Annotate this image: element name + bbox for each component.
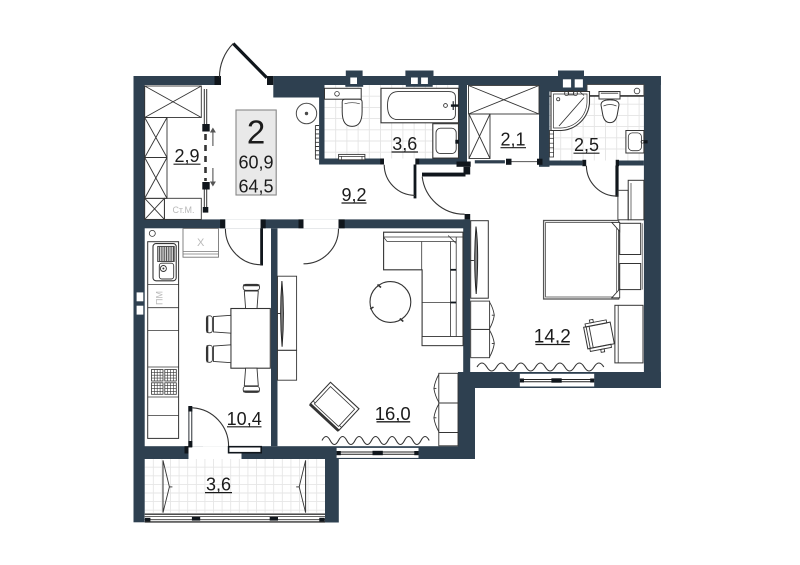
svg-text:16,0: 16,0: [375, 403, 411, 424]
svg-text:2: 2: [247, 114, 265, 151]
svg-text:2,5: 2,5: [574, 135, 599, 155]
svg-text:3,6: 3,6: [206, 475, 231, 495]
svg-text:ПМ: ПМ: [155, 291, 165, 305]
svg-text:64,5: 64,5: [238, 177, 273, 197]
svg-text:3,6: 3,6: [392, 134, 417, 154]
svg-text:X: X: [197, 237, 205, 249]
svg-text:10,4: 10,4: [227, 409, 262, 429]
svg-text:9,2: 9,2: [341, 185, 366, 205]
svg-text:2,1: 2,1: [500, 129, 525, 149]
svg-text:60,9: 60,9: [238, 153, 273, 173]
svg-text:2,9: 2,9: [174, 146, 199, 166]
svg-text:Ст.М.: Ст.М.: [172, 205, 194, 215]
